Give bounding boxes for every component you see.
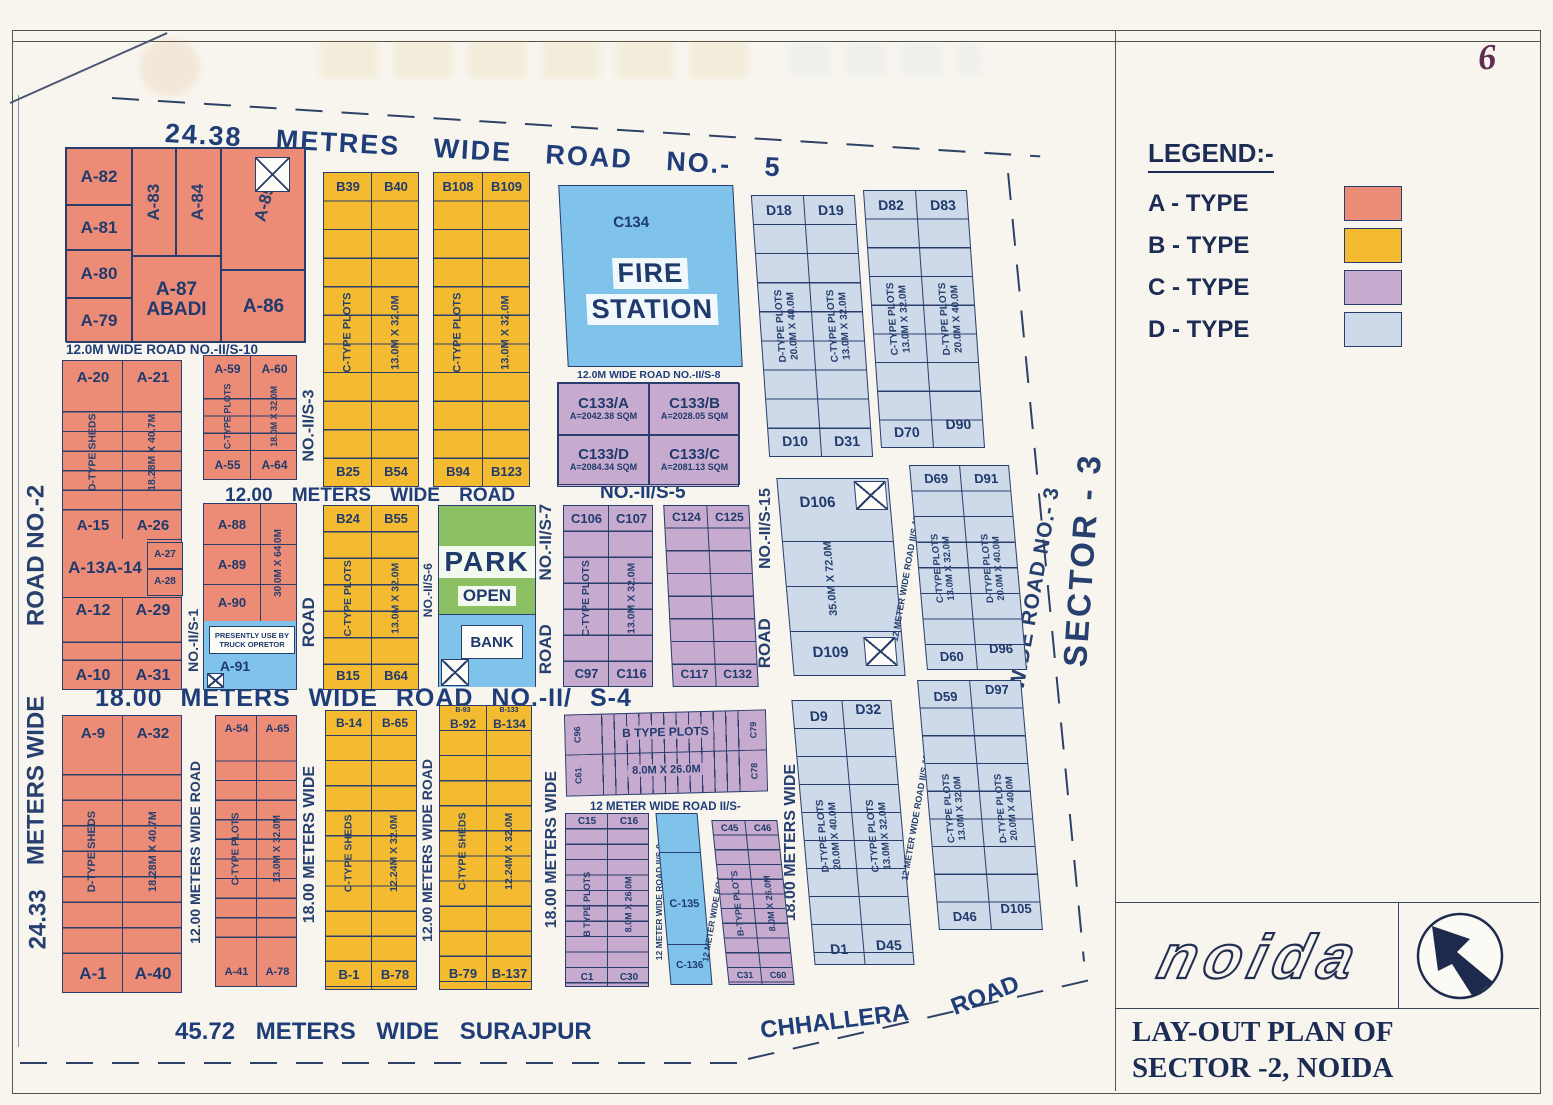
plot-a1: A-1 [63, 954, 123, 994]
ghost-bleedthrough [320, 42, 750, 78]
plot-d90: D90 [931, 409, 985, 438]
plot-d109: D109 [798, 641, 864, 663]
plot-a29: A-29 [123, 597, 183, 625]
block-c133: C133/AA=2042.38 SQM C133/BA=2028.05 SQM … [557, 382, 739, 487]
plot-type-label: C-TYPE PLOTS [324, 536, 372, 661]
plot-d105: D105 [989, 895, 1043, 921]
plot-c125: C125 [707, 506, 751, 528]
plot-a28: A-28 [147, 569, 183, 596]
title-block-line [1115, 1008, 1539, 1009]
plot-d32: D32 [842, 697, 894, 721]
plot-a89: A-89 [204, 544, 260, 584]
survey-mark-icon [854, 481, 889, 510]
plot-d31: D31 [820, 426, 874, 455]
plot-c1: C1 [566, 969, 608, 986]
block-a2: A-20 A-21 D-TYPE SHEDS 18.28M X 40.7M A-… [62, 360, 182, 690]
road-label-wide18: 18.00 METERS WIDE [299, 700, 321, 990]
block-c-strip: C96 C61 C79 C78 B TYPE PLOTS 8.0M X 26.0… [564, 709, 768, 796]
block-c3: C15 C16 B TYPE PLOTS 8.0M X 26.0M C1 C30 [565, 813, 649, 987]
plot-a83: A-83 [132, 148, 176, 256]
boundary-dash-bottom [20, 1062, 750, 1064]
shed-grid [63, 625, 181, 661]
plot-c133d: C133/DA=2084.34 SQM [558, 435, 649, 485]
plot-b109: B109 [482, 173, 531, 200]
plot-b123: B123 [482, 457, 531, 486]
plot-a55: A-55 [204, 451, 251, 478]
plot-a41: A-41 [216, 956, 257, 988]
plot-a88: A-88 [204, 504, 260, 544]
plot-c96: C96 [565, 715, 591, 755]
block-d3: D106 35.0M X 72.0M D109 [776, 478, 905, 676]
plot-a13-a14: A-13A-14 [63, 539, 147, 597]
road-label-s1: NO.-II/S-1 [183, 588, 203, 693]
plot-a26: A-26 [123, 511, 183, 539]
shed-type-label: C-TYPE SHEDS [326, 751, 372, 956]
plot-d1: D1 [813, 935, 865, 963]
plot-b93: B-93 [442, 706, 484, 715]
grid-line [660, 852, 700, 853]
plot-c133c: C133/CA=2081.13 SQM [649, 435, 740, 485]
shed-type-label: C-TYPE SHEDS [440, 746, 486, 956]
page-number: 6 [1477, 35, 1498, 78]
plot-dim-label: 13.0M X 32.0M [257, 742, 298, 956]
plot-type-label: C-TYPE PLOTS [324, 223, 372, 443]
plot-type-label: C-TYPE PLOTS [434, 223, 482, 443]
block-c1: C106 C107 C-TYPE PLOTS 13.0M X 32.0M C97… [563, 505, 653, 687]
ghost-bleedthrough [790, 45, 980, 75]
plot-c61: C61 [566, 755, 592, 796]
plot-a87-abadi: A-87ABADI [132, 256, 221, 343]
road-label-s8: 12.0M WIDE ROAD NO.-II/S-8 [577, 369, 721, 381]
road-label-s7: NO.-II/S-7 [534, 485, 558, 600]
park-block: PARK OPEN BANK [438, 505, 536, 687]
plot-c30: C30 [608, 969, 650, 986]
plot-dim-label: 13.0M X 32.0M [609, 536, 654, 661]
fire-station-label: STATION [565, 292, 740, 326]
legend-label-b: B - TYPE [1148, 232, 1249, 260]
plot-c31: C31 [728, 967, 763, 983]
plot-d18: D18 [752, 196, 806, 224]
road-label-sc: 12 METER WIDE ROAD II/S- [590, 801, 741, 813]
plot-c60: C60 [761, 967, 796, 983]
plot-c116: C116 [609, 660, 654, 686]
plot-b39: B39 [324, 173, 372, 200]
legend-label-a: A - TYPE [1148, 190, 1248, 218]
plot-b137: B-137 [486, 958, 533, 989]
legend-label-d: D - TYPE [1148, 316, 1249, 344]
plot-a86: A-86 [221, 270, 306, 343]
plot-a12: A-12 [63, 597, 123, 625]
plot-b134: B-134 [486, 715, 533, 732]
plot-c132: C132 [715, 662, 759, 686]
plot-d9: D9 [793, 704, 845, 728]
plot-b24: B24 [324, 506, 372, 531]
survey-mark-icon [441, 659, 469, 686]
plot-type-label: B TYPE PLOTS [595, 721, 735, 743]
park-open-label: OPEN [439, 584, 535, 608]
survey-mark-icon [863, 637, 898, 666]
plot-d97: D97 [970, 677, 1024, 701]
plot-a20: A-20 [63, 361, 123, 393]
plot-b40: B40 [372, 173, 420, 200]
legend-label-c: C - TYPE [1148, 274, 1249, 302]
plot-d96: D96 [975, 636, 1027, 660]
plot-c46: C46 [745, 821, 779, 835]
plot-a79: A-79 [66, 298, 132, 343]
panel-divider-line [1115, 31, 1116, 1091]
block-d4: D69 D91 C-TYPE PLOTS13.0M X 32.0M D-TYPE… [909, 465, 1027, 670]
plot-c117: C117 [672, 662, 716, 686]
road-label-s6: NO.-II/S-6 [418, 528, 438, 653]
plot-c106: C106 [564, 506, 609, 530]
plot-dim-label: 8.0M X 26.0M [596, 759, 736, 781]
fire-station-block: C134 FIRE STATION [558, 185, 743, 367]
plot-d45: D45 [863, 931, 915, 959]
plot-c16: C16 [608, 814, 650, 828]
plot-a31: A-31 [123, 661, 183, 691]
road-label-wide18b: 18.00 METERS WIDE [540, 700, 564, 1000]
legend-swatch-a [1344, 186, 1402, 221]
plot-a15: A-15 [63, 511, 123, 539]
plot-a27: A-27 [147, 542, 183, 569]
legend-swatch-c [1344, 270, 1402, 305]
frame-top-line [12, 41, 1541, 42]
road-label-s3: NO.-II/S-3 [298, 362, 320, 490]
plot-grid [664, 506, 757, 686]
plot-b14: B-14 [326, 711, 372, 735]
shed-dim-label: 18.28M X 40.7M [123, 393, 183, 511]
plot-c134: C134 [591, 211, 672, 233]
plot-b1: B-1 [326, 959, 372, 989]
road-label-surajpur: 45.72 METERS WIDE SURAJPUR [175, 1018, 592, 1046]
truck-operator-area: PRESENTLY USE BYTRUCK OPRETOR A-91 [204, 621, 296, 689]
plot-d10: D10 [768, 426, 822, 455]
truck-operator-note: PRESENTLY USE BYTRUCK OPRETOR [209, 626, 295, 654]
block-a3: A-59 A-60 C-TYPE PLOTS 18.0M X 32.0M A-5… [203, 355, 297, 480]
bank-label: BANK [461, 625, 523, 659]
plot-dim-label: 13.0M X 32.0M [372, 536, 420, 661]
plot-b92: B-92 [440, 715, 486, 732]
title-block-line [1115, 902, 1539, 903]
plot-a32: A-32 [123, 716, 183, 750]
plot-type-label: C-TYPE PLOTS [204, 376, 251, 456]
plot-a78: A-78 [257, 956, 298, 988]
plot-dim-label: 35.0M X 72.0M [800, 509, 862, 649]
plot-d91: D91 [960, 466, 1012, 490]
plot-a90: A-90 [204, 584, 260, 621]
plot-b79: B-79 [440, 958, 486, 989]
plot-dim-label: 8.0M X 26.0M [608, 844, 650, 964]
plot-a21: A-21 [123, 361, 183, 393]
plot-dim-label: 30.0M X 64.0M [260, 504, 298, 621]
north-arrow-icon [1410, 908, 1510, 1004]
block-a5: A-9 A-32 D-TYPE SHEDS 18.28M X 40.7M A-1… [62, 715, 182, 993]
shed-type-label: D-TYPE SHEDS [63, 750, 123, 954]
survey-mark-icon [207, 673, 224, 688]
plot-c78: C78 [742, 750, 767, 791]
road-label-v12: 12.00 METERS WIDE ROAD [184, 715, 206, 990]
fire-station-label: FIRE [563, 256, 738, 290]
plot-a9: A-9 [63, 716, 123, 750]
block-b5: B-93 B-133 B-92 B-134 C-TYPE SHEDS 12.24… [439, 705, 532, 990]
block-d2: D82 D83 C-TYPE PLOTS13.0M X 32.0M D-TYPE… [863, 190, 985, 448]
plot-b94: B94 [434, 457, 482, 486]
road-label-no2-meters: METERS WIDE [20, 688, 54, 873]
shed-dim-label: 18.28M X 40.7M [123, 750, 183, 954]
plot-type-label: C-TYPE PLOTS [564, 536, 609, 661]
plot-b15: B15 [324, 661, 372, 689]
legend-swatch-d [1344, 312, 1402, 347]
plot-type-label: C-TYPE PLOTS [216, 742, 257, 956]
plot-dim-label: 18.0M X 32.0M [251, 376, 298, 456]
plot-c135: C-135 [662, 874, 707, 934]
plot-b108: B108 [434, 173, 482, 200]
plot-d82: D82 [864, 191, 918, 219]
plot-d60: D60 [926, 644, 978, 668]
plot-b65: B-65 [372, 711, 418, 735]
plot-d69: D69 [910, 466, 962, 490]
shed-dim-label: 12.24M X 32.0M [486, 746, 533, 956]
plot-c79: C79 [741, 710, 766, 750]
block-a4: A-88 A-89 A-90 30.0M X 64.0M PRESENTLY U… [203, 503, 297, 690]
block-d6: D59 D97 C-TYPE PLOTS13.0M X 32.0M D-TYPE… [917, 680, 1043, 930]
plot-c133b: C133/BA=2028.05 SQM [649, 383, 740, 435]
road-label-no2: ROAD NO.-2 [20, 468, 54, 643]
block-b2: B108 B109 C-TYPE PLOTS 13.0M X 32.0M B94… [433, 172, 530, 487]
noida-logo: noida [1130, 915, 1390, 1000]
shed-type-label: D-TYPE SHEDS [63, 393, 123, 511]
plot-dim-label: 13.0M X 32.0M [482, 223, 531, 443]
plot-c15: C15 [566, 814, 608, 828]
plot-a64: A-64 [251, 451, 298, 478]
plot-a10: A-10 [63, 661, 123, 691]
plot-a80: A-80 [66, 250, 132, 298]
shed-dim-label: 12.24M X 32.0M [372, 751, 418, 956]
plot-dim-label: 13.0M X 32.0M [372, 223, 420, 443]
block-c2: C124 C125 C117 C132 [663, 505, 759, 687]
legend-swatch-b [1344, 228, 1402, 263]
title-block-line [1398, 902, 1399, 1008]
ghost-bleedthrough [140, 38, 200, 96]
road-label-v12b: 12.00 METERS WIDE ROAD [416, 710, 438, 990]
road-label-road-word: ROAD [534, 608, 558, 690]
sector3-label: SECTOR - 3 [1058, 400, 1106, 720]
plot-a84: A-84 [176, 148, 221, 256]
plot-type-label: B TYPE PLOTS [566, 844, 608, 964]
plot-c107: C107 [609, 506, 654, 530]
plot-d19: D19 [804, 196, 858, 224]
road-label-no2-width: 24.33 [22, 872, 56, 967]
plot-c45: C45 [712, 821, 746, 835]
plot-b54: B54 [372, 457, 420, 486]
plot-b55: B55 [372, 506, 420, 531]
block-b1: B39 B40 C-TYPE PLOTS 13.0M X 32.0M B25 B… [323, 172, 419, 487]
plot-a54: A-54 [216, 716, 257, 742]
plot-b64: B64 [372, 661, 420, 689]
block-b4: B-14 B-65 C-TYPE SHEDS 12.24M X 32.0M B-… [325, 710, 417, 990]
plot-a82: A-82 [66, 148, 132, 205]
legend-title: LEGEND:- [1148, 138, 1274, 173]
block-d1: D18 D19 D-TYPE PLOTS20.0M X 40.0M C-TYPE… [751, 195, 873, 457]
map-title: LAY-OUT PLAN OF SECTOR -2, NOIDA [1132, 1014, 1394, 1087]
layout-plan-page: 24.38 METRES WIDE ROAD NO.- 5 18.00 METE… [0, 0, 1553, 1105]
road-label-s15: NO.-II/S-15 [753, 470, 777, 588]
plot-b25: B25 [324, 457, 372, 486]
block-a6: A-54 A-65 C-TYPE PLOTS 13.0M X 32.0M A-4… [215, 715, 297, 987]
plot-a81: A-81 [66, 205, 132, 250]
plot-d59: D59 [918, 684, 972, 708]
block-b3: B24 B55 C-TYPE PLOTS 13.0M X 32.0M B15 B… [323, 505, 419, 690]
plot-a65: A-65 [257, 716, 298, 742]
plot-d46: D46 [938, 903, 992, 929]
plot-c97: C97 [564, 660, 609, 686]
plot-b78: B-78 [372, 959, 418, 989]
survey-mark-icon [255, 157, 290, 192]
plot-d83: D83 [916, 191, 970, 219]
park-label: PARK [439, 544, 535, 580]
plot-c133a: C133/AA=2042.38 SQM [558, 383, 649, 435]
plot-b133: B-133 [488, 706, 530, 715]
bank-area: BANK [439, 614, 535, 687]
plot-a40: A-40 [123, 954, 183, 994]
plot-c124: C124 [664, 506, 708, 528]
plot-d70: D70 [880, 417, 934, 446]
road-label-road-word: ROAD [298, 560, 320, 685]
